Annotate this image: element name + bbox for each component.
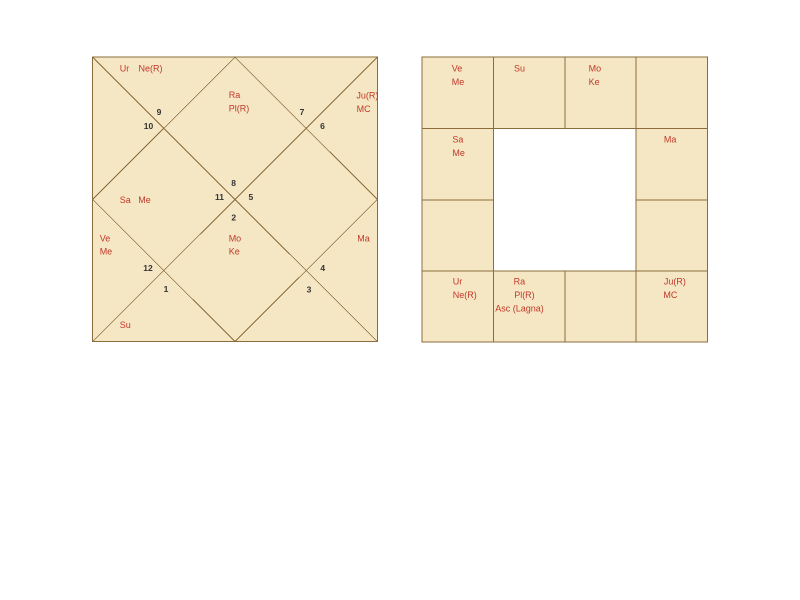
svg-text:MC: MC [663,290,677,300]
svg-text:Ju(R): Ju(R) [356,91,378,101]
svg-text:12: 12 [143,263,153,273]
svg-text:7: 7 [300,107,305,117]
svg-text:Mo: Mo [229,233,242,243]
svg-text:Ma: Ma [664,135,677,145]
svg-text:9: 9 [157,107,162,117]
svg-text:1: 1 [164,284,169,294]
svg-text:Ma: Ma [357,233,370,243]
svg-text:5: 5 [249,192,254,202]
svg-text:Pl(R): Pl(R) [514,290,535,300]
svg-text:Ne(R): Ne(R) [453,290,477,300]
svg-text:Me: Me [100,246,113,256]
svg-text:Ke: Ke [229,246,240,256]
svg-text:Ur: Ur [120,63,130,73]
svg-text:2: 2 [231,212,236,222]
svg-text:Ra: Ra [229,90,241,100]
svg-text:10: 10 [144,121,154,131]
svg-text:4: 4 [320,263,325,273]
svg-text:MC: MC [357,104,371,114]
svg-text:Me: Me [452,77,465,87]
svg-text:Su: Su [514,63,525,73]
svg-text:Me: Me [138,195,151,205]
svg-text:Ju(R): Ju(R) [664,277,686,287]
svg-text:6: 6 [320,121,325,131]
svg-text:Mo: Mo [589,63,602,73]
svg-text:Ve: Ve [452,63,463,73]
svg-text:Ra: Ra [514,277,526,287]
svg-text:Ur: Ur [453,277,463,287]
svg-text:Sa: Sa [452,135,463,145]
svg-text:Ne(R): Ne(R) [139,63,163,73]
svg-text:3: 3 [307,284,312,294]
svg-text:Sa: Sa [120,195,131,205]
svg-text:Ke: Ke [589,77,600,87]
svg-text:Asc (Lagna): Asc (Lagna) [495,303,544,313]
svg-text:Ve: Ve [100,233,111,243]
svg-text:Su: Su [120,320,131,330]
svg-text:11: 11 [215,192,224,202]
svg-text:Me: Me [452,148,465,158]
svg-text:8: 8 [231,178,236,188]
svg-text:Pl(R): Pl(R) [229,104,250,114]
